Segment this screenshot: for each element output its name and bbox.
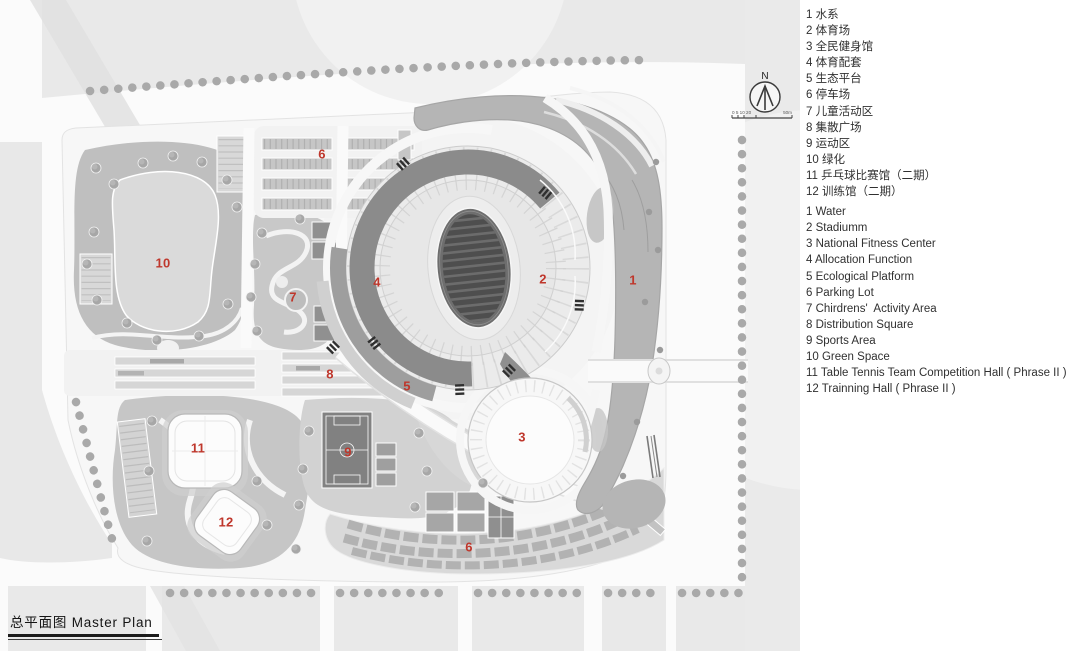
legend-item: 12 训练馆（二期）	[806, 184, 1067, 200]
legend-item: 6 停车场	[806, 87, 1067, 103]
plan-title: 总平面图 Master Plan	[8, 611, 159, 640]
legend-item: 11 Table Tennis Team Competition Hall ( …	[806, 365, 1067, 381]
legend-item: 9 Sports Area	[806, 333, 1067, 349]
legend-item: 5 生态平台	[806, 71, 1067, 87]
legend-zh-list: 1 水系2 体育场3 全民健身馆4 体育配套5 生态平台6 停车场7 儿童活动区…	[806, 7, 1067, 200]
site-plan-map: N 0 5 10 20 50m 1067421859311126 总平面图 Ma…	[0, 0, 800, 651]
legend-item: 5 Ecological Platform	[806, 269, 1067, 285]
scale-numbers: 0 5 10 20	[732, 110, 752, 115]
plan-title-text: 总平面图 Master Plan	[8, 611, 159, 637]
legend-item: 4 Allocation Function	[806, 252, 1067, 268]
legend-item: 2 Stadiumm	[806, 220, 1067, 236]
legend-item: 11 乒乓球比赛馆（二期）	[806, 168, 1067, 184]
legend-item: 9 运动区	[806, 136, 1067, 152]
scale-unit: 50m	[783, 110, 792, 115]
legend-item: 3 National Fitness Center	[806, 236, 1067, 252]
legend-item: 12 Trainning Hall ( Phrase II )	[806, 381, 1067, 397]
sports-courts	[426, 492, 514, 538]
site-plan-drawing: N 0 5 10 20 50m	[0, 0, 800, 651]
park-lake	[112, 172, 218, 332]
legend-item: 4 体育配套	[806, 55, 1067, 71]
legend-item: 10 绿化	[806, 152, 1067, 168]
legend-panel: 1 水系2 体育场3 全民健身馆4 体育配套5 生态平台6 停车场7 儿童活动区…	[806, 7, 1067, 397]
north-label: N	[761, 71, 768, 82]
legend-item: 1 Water	[806, 204, 1067, 220]
legend-item: 8 集散广场	[806, 120, 1067, 136]
legend-item: 6 Parking Lot	[806, 285, 1067, 301]
legend-item: 8 Distribution Square	[806, 317, 1067, 333]
legend-item: 7 儿童活动区	[806, 104, 1067, 120]
legend-item: 2 体育场	[806, 23, 1067, 39]
legend-item: 3 全民健身馆	[806, 39, 1067, 55]
title-underline	[8, 639, 162, 640]
legend-item: 10 Green Space	[806, 349, 1067, 365]
master-plan-screenshot: N 0 5 10 20 50m 1067421859311126 总平面图 Ma…	[0, 0, 1080, 651]
legend-item: 7 Chirdrens' Activity Area	[806, 301, 1067, 317]
legend-en-list: 1 Water2 Stadiumm3 National Fitness Cent…	[806, 204, 1067, 397]
legend-item: 1 水系	[806, 7, 1067, 23]
